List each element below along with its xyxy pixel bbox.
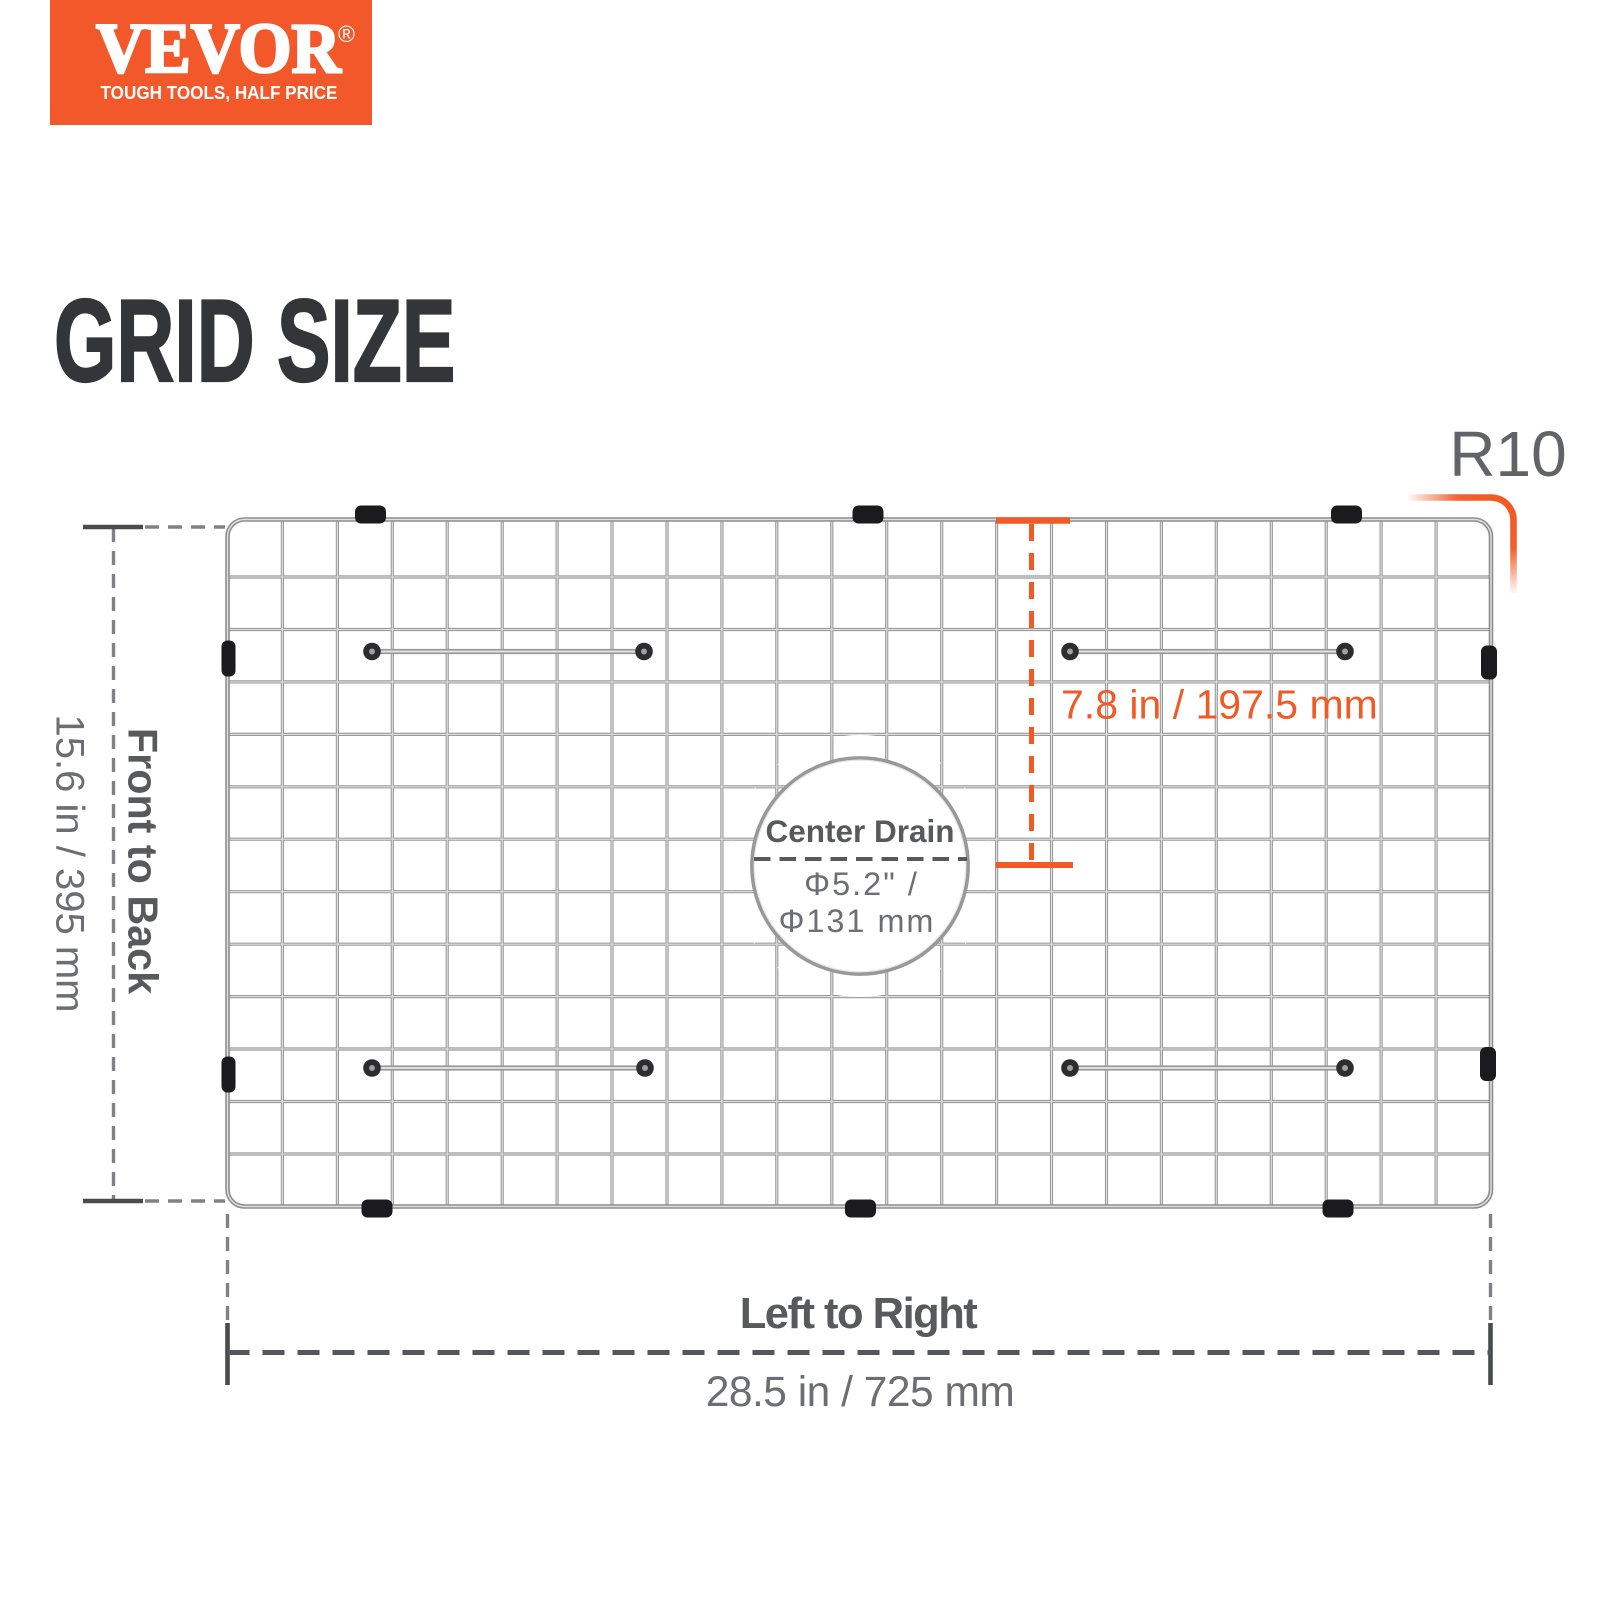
svg-text:7.8 in / 197.5 mm: 7.8 in / 197.5 mm [1061, 682, 1378, 728]
svg-text:28.5 in / 725 mm: 28.5 in / 725 mm [706, 1369, 1015, 1416]
svg-text:15.6 in / 395 mm: 15.6 in / 395 mm [48, 715, 92, 1013]
svg-text:Left to Right: Left to Right [740, 1290, 978, 1338]
svg-text:Center Drain: Center Drain [765, 813, 954, 849]
svg-text:Φ131 mm: Φ131 mm [779, 903, 936, 939]
svg-text:Φ5.2" /: Φ5.2" / [804, 866, 919, 902]
svg-text:Front to Back: Front to Back [120, 728, 166, 994]
svg-text:R10: R10 [1449, 418, 1566, 490]
